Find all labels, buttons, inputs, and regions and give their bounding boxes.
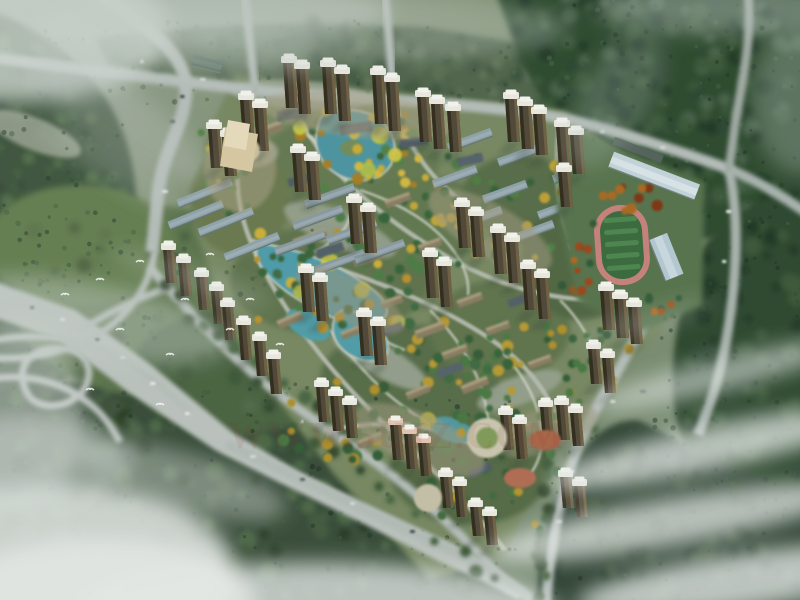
svg-text:WWW.5UJZ.COM: WWW.5UJZ.COM: [228, 415, 565, 457]
